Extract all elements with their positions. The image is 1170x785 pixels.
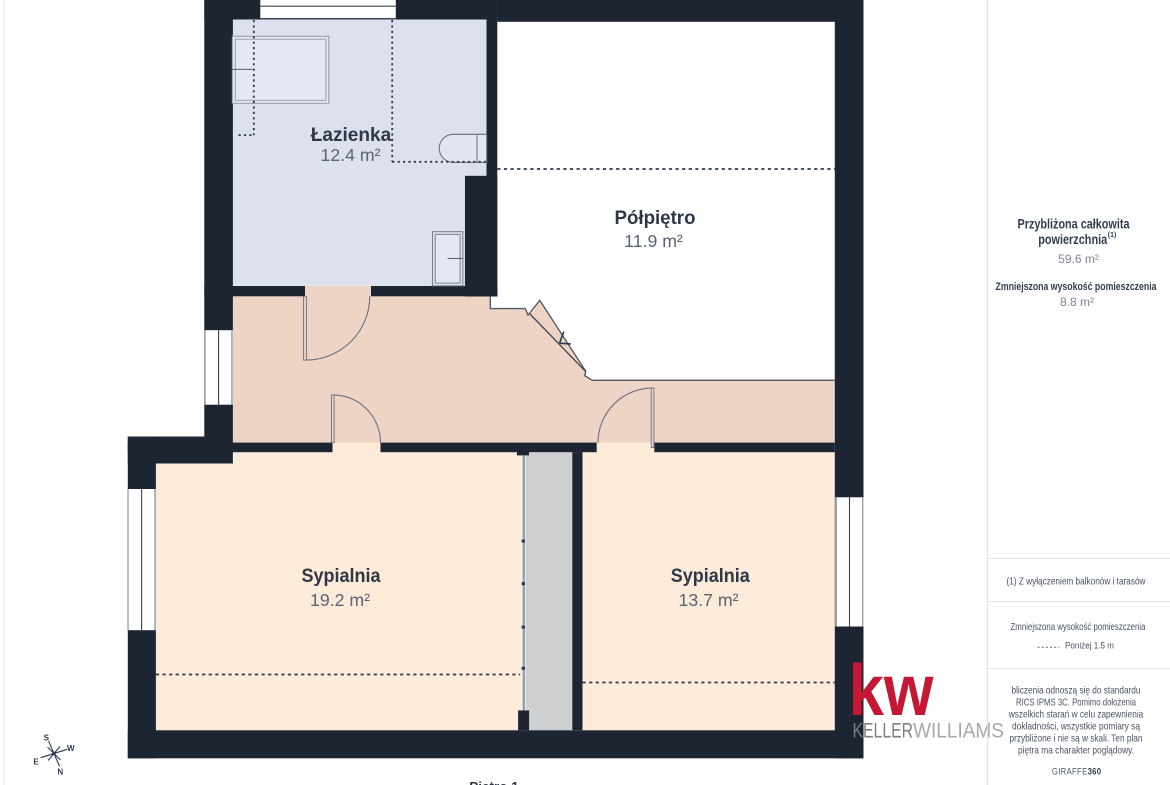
svg-text:Półpiętro: Półpiętro bbox=[615, 207, 696, 229]
svg-text:(1): (1) bbox=[1108, 232, 1117, 239]
svg-text:Sypialnia: Sypialnia bbox=[302, 565, 381, 587]
svg-text:Zmniejszona wysokość pomieszcz: Zmniejszona wysokość pomieszczenia bbox=[1011, 622, 1146, 633]
svg-text:dokładności, wszystkie pomiary: dokładności, wszystkie pomiary są bbox=[1012, 722, 1140, 733]
svg-text:N: N bbox=[57, 767, 63, 776]
svg-text:Poniżej 1.5 m: Poniżej 1.5 m bbox=[1065, 641, 1114, 651]
svg-text:GIRAFFE360: GIRAFFE360 bbox=[1052, 767, 1102, 777]
svg-text:59.6 m²: 59.6 m² bbox=[1058, 252, 1099, 266]
svg-text:powierzchnia: powierzchnia bbox=[1038, 231, 1107, 247]
svg-text:S: S bbox=[44, 733, 50, 742]
svg-text:19.2 m²: 19.2 m² bbox=[310, 590, 370, 610]
svg-text:Łazienka: Łazienka bbox=[311, 124, 392, 146]
svg-text:Przybliżona całkowita: Przybliżona całkowita bbox=[1018, 216, 1130, 232]
svg-text:11.9 m²: 11.9 m² bbox=[624, 231, 683, 251]
svg-text:W: W bbox=[67, 744, 75, 753]
svg-text:12.4 m²: 12.4 m² bbox=[321, 145, 381, 165]
svg-text:Zmniejszona wysokość pomieszcz: Zmniejszona wysokość pomieszczenia bbox=[996, 281, 1158, 293]
svg-text:E: E bbox=[33, 757, 39, 766]
svg-text:Piętro 1: Piętro 1 bbox=[469, 779, 519, 785]
svg-text:13.7 m²: 13.7 m² bbox=[679, 590, 739, 610]
svg-text:(1) Z wyłączeniem balkonów i t: (1) Z wyłączeniem balkonów i tarasów bbox=[1007, 576, 1146, 587]
svg-text:RICS IPMS 3C. Pomimo dołożenia: RICS IPMS 3C. Pomimo dołożenia bbox=[1016, 698, 1136, 709]
svg-text:Sypialnia: Sypialnia bbox=[671, 565, 750, 587]
svg-text:bliczenia odnoszą się do stand: bliczenia odnoszą się do standardu bbox=[1012, 686, 1141, 697]
svg-text:wszelkich starań w celu zapewn: wszelkich starań w celu zapewnienia bbox=[1008, 710, 1144, 721]
svg-text:8.8 m²: 8.8 m² bbox=[1060, 295, 1094, 309]
svg-text:przybliżone i nie są w skali.: przybliżone i nie są w skali. Ten plan bbox=[1010, 734, 1143, 745]
svg-text:WILLIAMS: WILLIAMS bbox=[913, 720, 1004, 743]
svg-text:piętra ma charakter poglądowy.: piętra ma charakter poglądowy. bbox=[1018, 746, 1134, 757]
svg-text:KELLER: KELLER bbox=[853, 720, 914, 743]
